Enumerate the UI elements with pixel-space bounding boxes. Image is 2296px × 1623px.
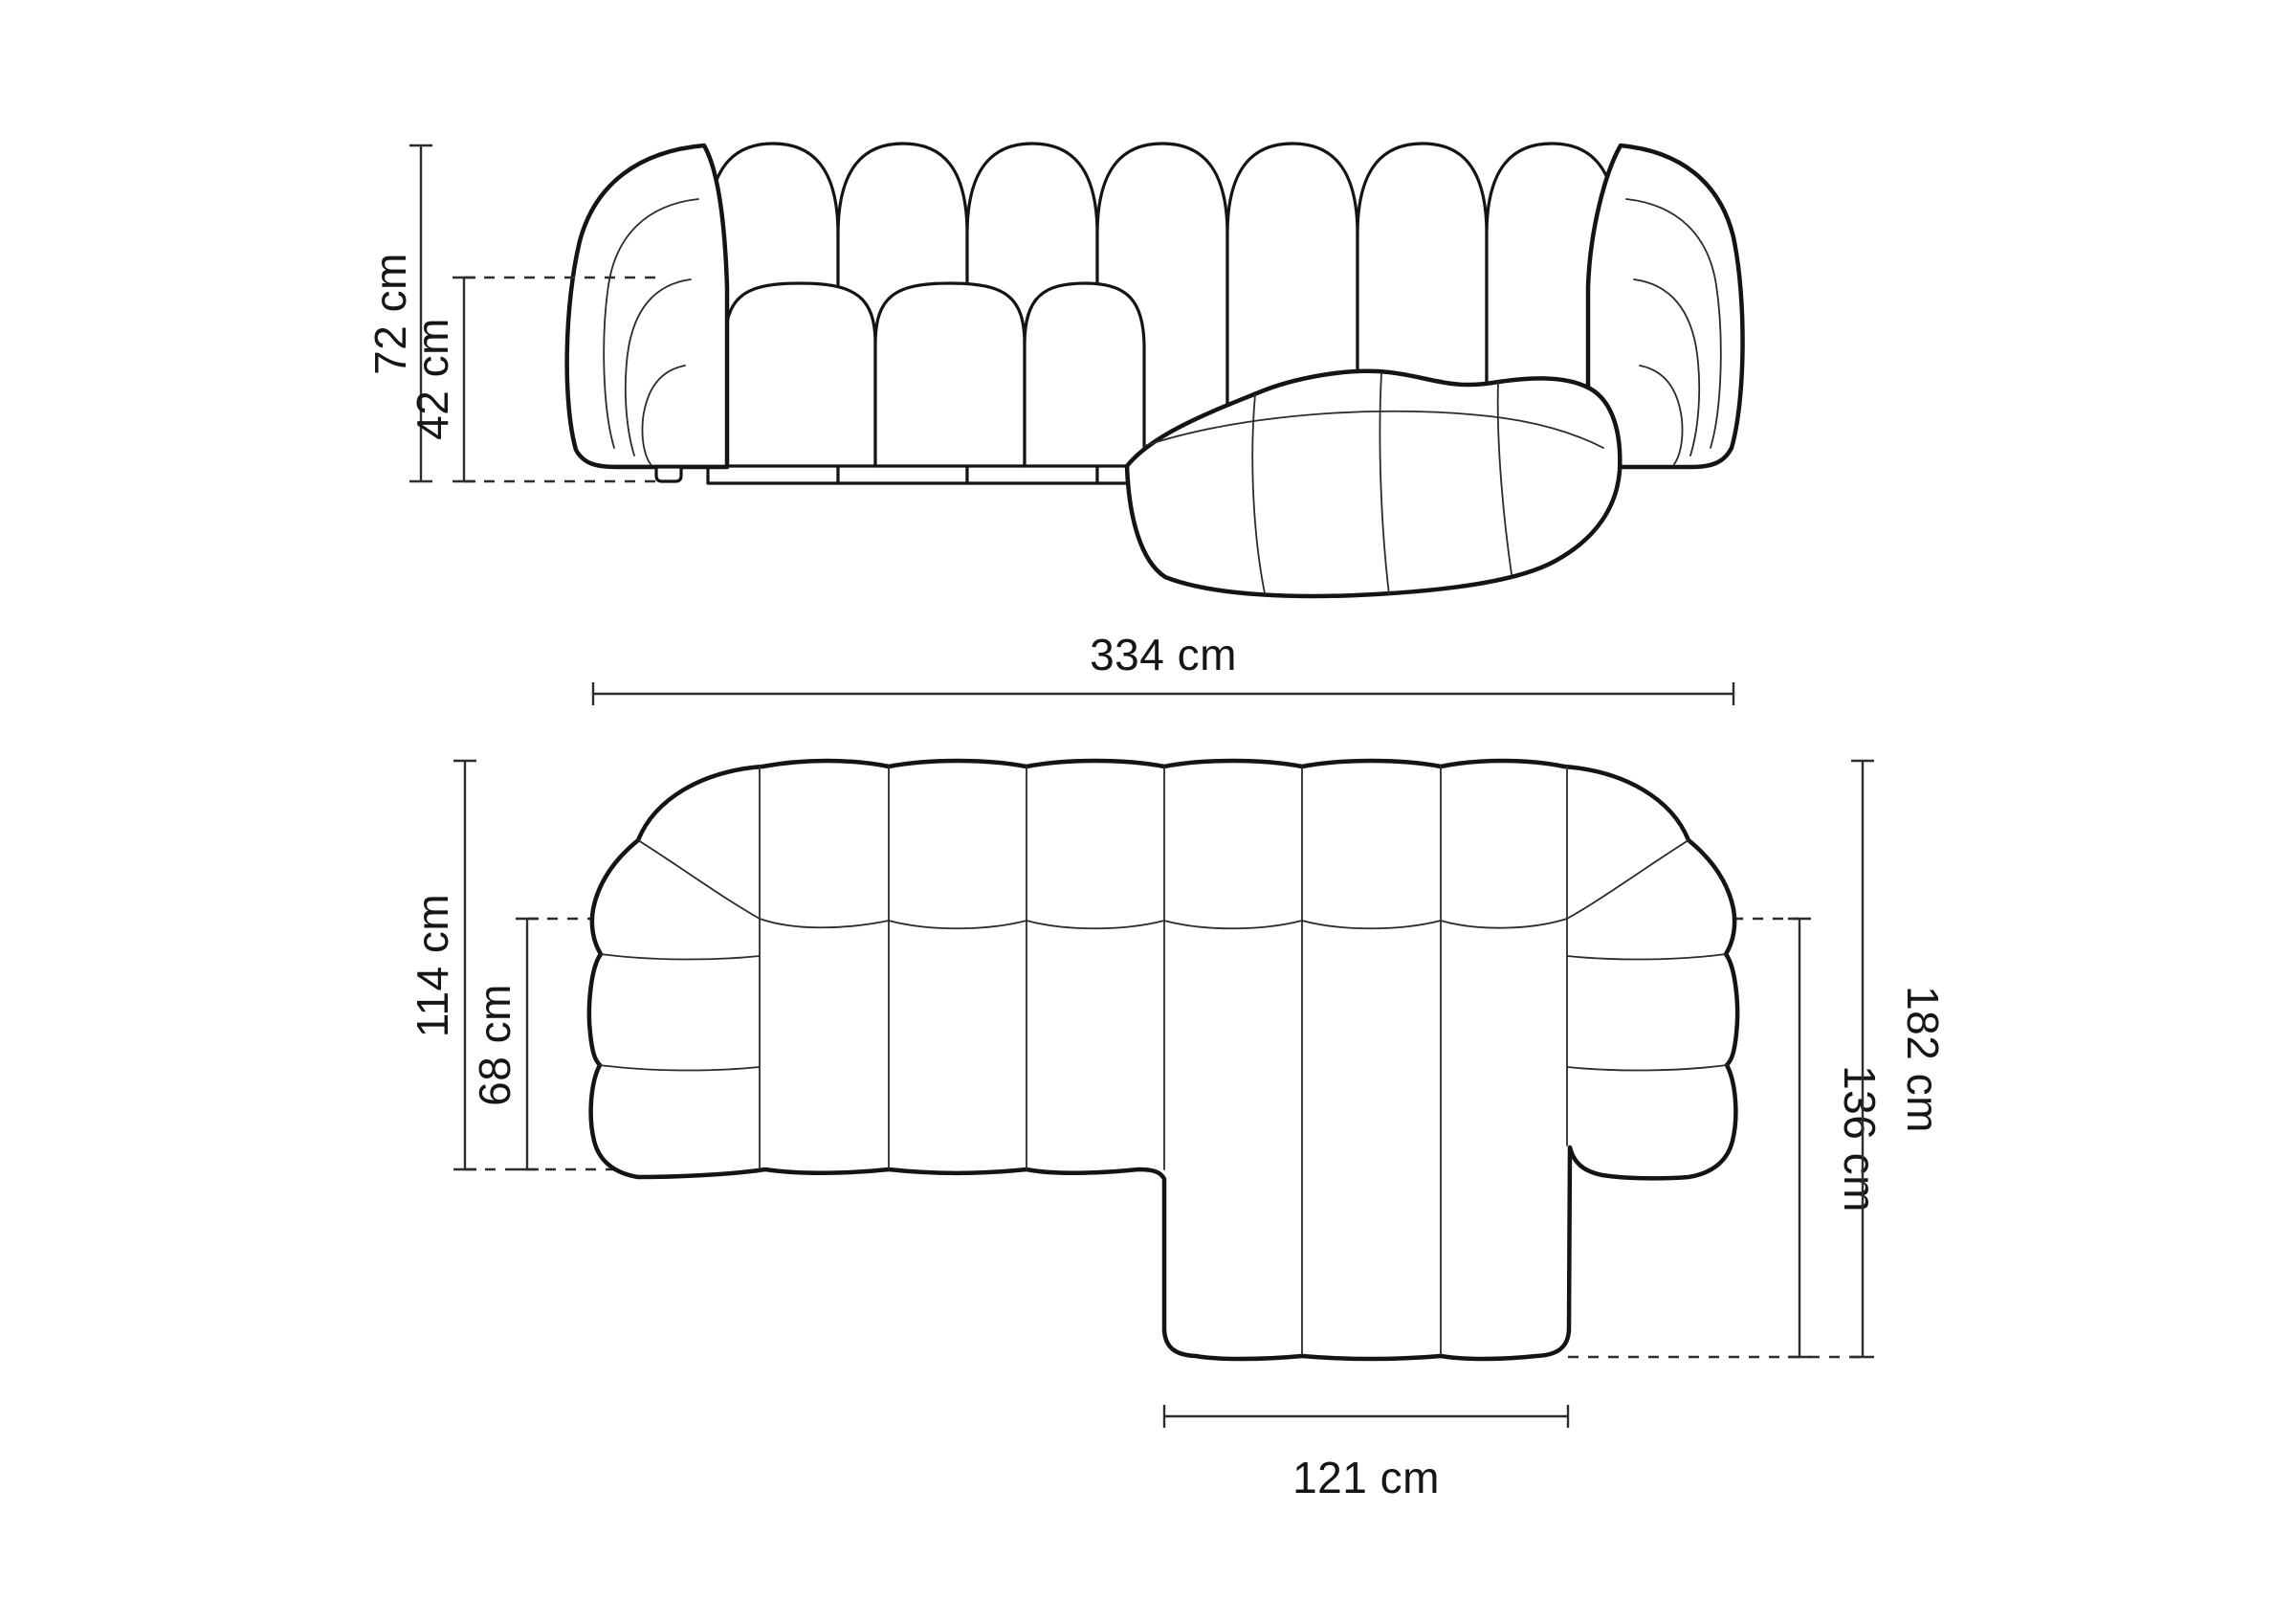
plan-body-depth-label: 114 cm — [408, 894, 457, 1037]
sofa-dimension-diagram: 72 cm 42 cm — [0, 0, 2296, 1623]
diagram-svg: 72 cm 42 cm — [0, 0, 2296, 1623]
front-seat-height-dimension: 42 cm — [408, 278, 475, 481]
plan-seat-depth-dimension: 68 cm — [470, 919, 539, 1169]
plan-seat-depth-label: 68 cm — [470, 984, 519, 1106]
front-left-arm — [567, 145, 727, 467]
plan-chaise-depth-label: 136 cm — [1835, 1065, 1885, 1212]
front-elevation-view: 72 cm 42 cm — [365, 144, 1743, 596]
plan-chaise-width-dimension: 121 cm — [1164, 1405, 1568, 1502]
front-seat-cushions — [725, 283, 1144, 466]
plan-chaise-depth-dimension: 136 cm — [1788, 919, 1885, 1357]
plan-body-depth-dimension: 114 cm — [408, 761, 476, 1169]
front-leg — [656, 467, 681, 481]
plan-overall-width-dimension: 334 cm — [593, 630, 1733, 705]
plan-overall-width-label: 334 cm — [1090, 630, 1237, 679]
plan-chaise-width-label: 121 cm — [1292, 1453, 1440, 1502]
front-seat-height-label: 42 cm — [408, 318, 457, 440]
plan-overall-depth-label: 182 cm — [1898, 986, 1948, 1133]
plan-view: 334 cm 114 cm 68 cm 136 cm 182 cm 121 cm — [408, 630, 1948, 1502]
plan-overall-depth-dimension: 182 cm — [1851, 761, 1948, 1357]
plan-sofa — [589, 761, 1737, 1359]
